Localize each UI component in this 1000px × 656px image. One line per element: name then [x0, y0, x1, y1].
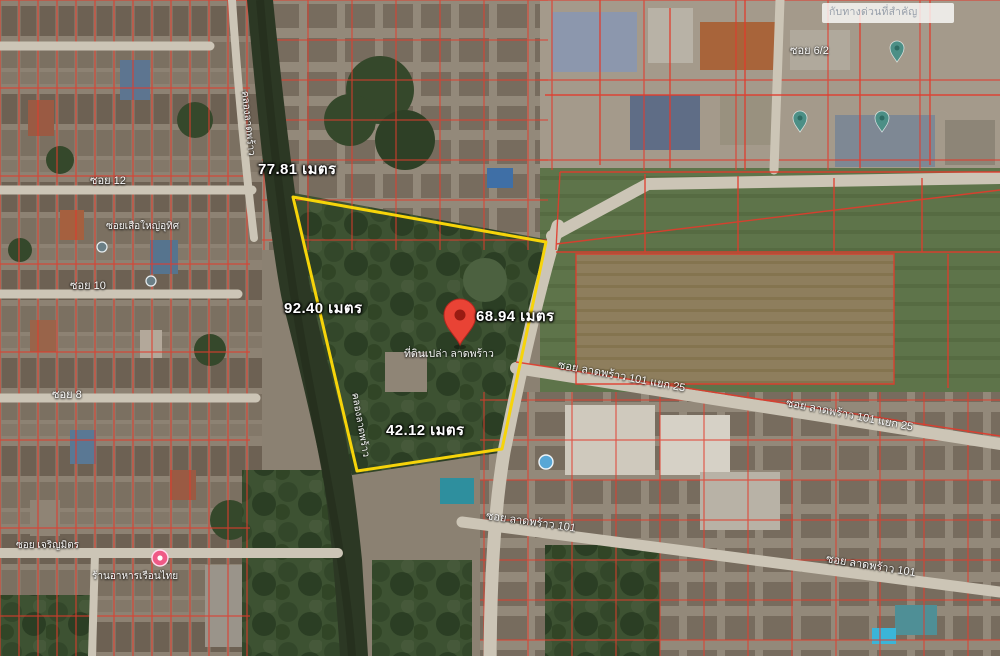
poi-label-restaurant: ร้านอาหารเรือนไทย [92, 572, 178, 582]
poi-dot-icon[interactable] [97, 242, 107, 252]
measurement-bottom: 42.12 เมตร [386, 423, 465, 438]
street-label-soi8: ซอย 8 [52, 390, 82, 401]
pin-caption: ที่ดินเปล่า ลาดพร้าว [404, 349, 494, 360]
restaurant-poi-icon[interactable] [152, 550, 168, 566]
watermark-text: กับทางด่วนที่สำคัญ [829, 6, 917, 18]
poi-dot-icon[interactable] [539, 455, 553, 469]
measurement-right: 68.94 เมตร [476, 309, 555, 324]
poi-dot-icon[interactable] [146, 276, 156, 286]
street-label-soi-charoen: ซอย เจริญมิตร [16, 541, 79, 551]
measurement-top: 77.81 เมตร [258, 162, 337, 177]
satellite-map[interactable]: 77.81 เมตร 92.40 เมตร 68.94 เมตร 42.12 เ… [0, 0, 1000, 656]
street-label-soi12: ซอย 12 [90, 176, 126, 187]
dirt-field [576, 254, 894, 384]
measurement-left: 92.40 เมตร [284, 301, 363, 316]
street-label-suea-yai: ซอยเสือใหญ่อุทิศ [106, 222, 179, 232]
street-label-soi-6-2: ซอย 6/2 [790, 46, 829, 57]
street-label-soi10: ซอย 10 [70, 281, 106, 292]
watermark-box: กับทางด่วนที่สำคัญ [822, 3, 954, 23]
